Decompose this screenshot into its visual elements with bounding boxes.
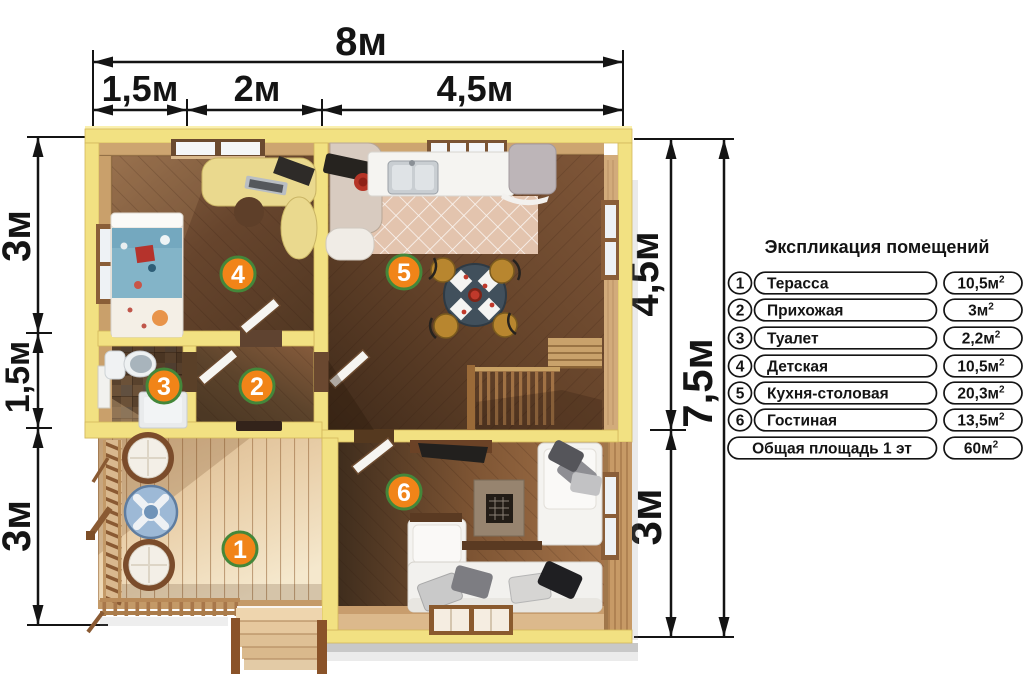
svg-text:7,5м: 7,5м (674, 338, 721, 427)
svg-text:4: 4 (736, 359, 745, 376)
svg-text:4,5м: 4,5м (437, 68, 514, 109)
svg-text:3: 3 (736, 331, 745, 348)
svg-text:Экспликация помещений: Экспликация помещений (765, 237, 990, 257)
svg-text:4: 4 (231, 261, 245, 289)
svg-text:5: 5 (736, 386, 745, 403)
svg-text:6: 6 (397, 479, 411, 507)
svg-text:3: 3 (157, 373, 171, 401)
svg-text:6: 6 (736, 413, 745, 430)
svg-text:Общая площадь 1 эт: Общая площадь 1 эт (752, 441, 912, 458)
svg-text:Прихожая: Прихожая (767, 303, 843, 320)
svg-text:2м: 2м (234, 68, 281, 109)
svg-text:Терасса: Терасса (767, 276, 829, 293)
svg-text:Детская: Детская (767, 359, 828, 376)
svg-text:1: 1 (736, 276, 745, 293)
svg-text:8м: 8м (335, 20, 387, 64)
svg-text:2: 2 (250, 373, 264, 401)
svg-text:10,5м2: 10,5м2 (957, 275, 1005, 293)
svg-text:1,5м: 1,5м (0, 341, 37, 413)
svg-text:13,5м2: 13,5м2 (957, 412, 1005, 430)
svg-text:Кухня-столовая: Кухня-столовая (767, 386, 889, 403)
svg-text:Туалет: Туалет (767, 331, 819, 348)
svg-text:3м: 3м (0, 500, 39, 552)
svg-text:3м: 3м (0, 210, 39, 262)
svg-text:1: 1 (233, 536, 247, 564)
svg-text:5: 5 (397, 259, 411, 287)
svg-text:10,5м2: 10,5м2 (957, 358, 1005, 376)
svg-text:20,3м2: 20,3м2 (957, 385, 1005, 403)
svg-text:Гостиная: Гостиная (767, 413, 837, 430)
svg-text:1,5м: 1,5м (102, 68, 179, 109)
svg-text:2: 2 (736, 303, 745, 320)
